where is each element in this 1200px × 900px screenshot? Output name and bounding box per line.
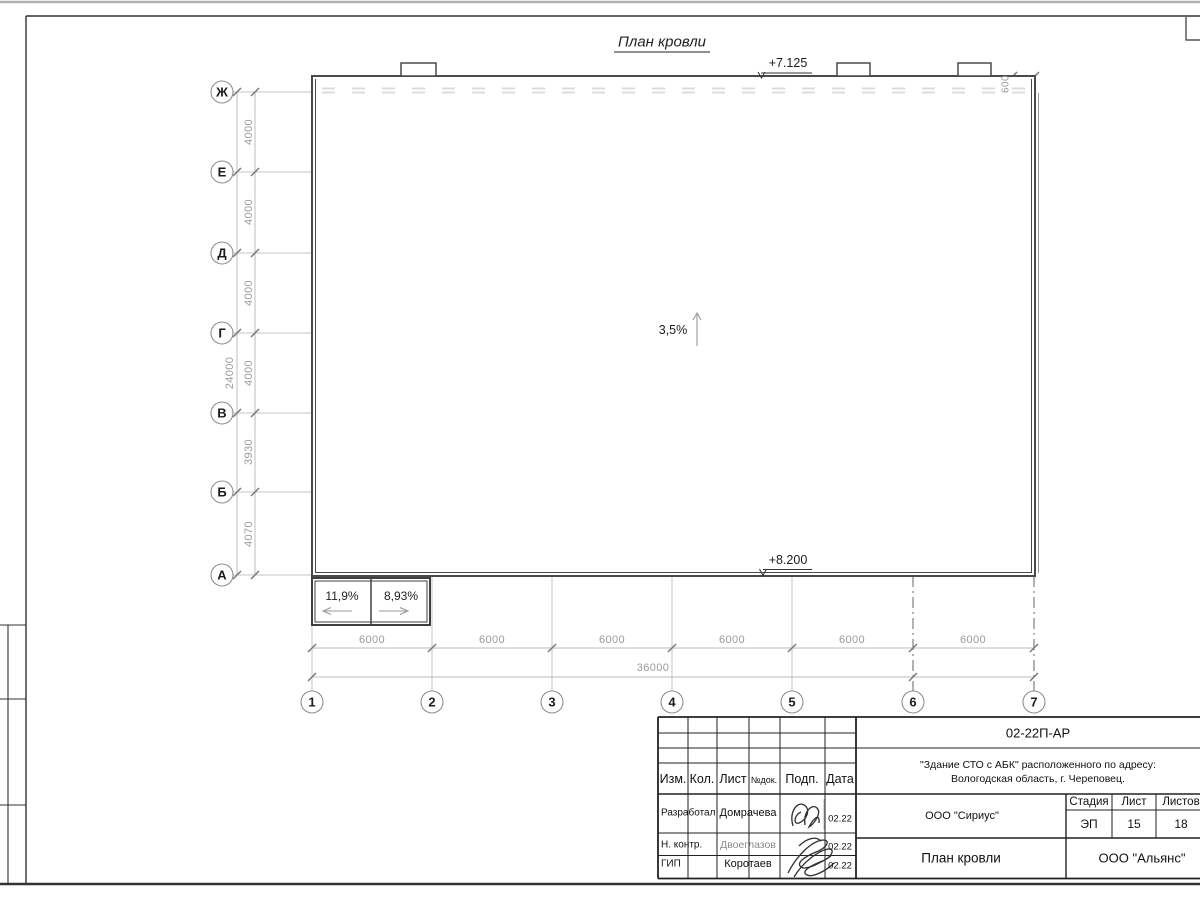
row-total-dim: 24000 [224, 357, 236, 390]
axis-col-label: 3 [548, 695, 555, 710]
roof-vent [401, 63, 436, 76]
row-dim: 4000 [243, 280, 255, 306]
row-dim: 3930 [243, 439, 255, 465]
col-dim: 6000 [839, 634, 865, 646]
tb-stage-value: ЭП [1080, 817, 1097, 831]
annex-slope-left: 11,9% [325, 589, 358, 603]
tb-project-line2: Вологодская область, г. Череповец. [951, 773, 1125, 785]
axis-row-label: Г [218, 326, 225, 341]
row-dim: 4000 [243, 360, 255, 386]
tb-date: 02.22 [828, 861, 852, 872]
axis-row-label: В [217, 406, 226, 421]
tb-customer-org: ООО "Альянс" [1099, 851, 1186, 866]
tb-name: Двоеглазов [720, 839, 776, 851]
drawing-sheet: План кровли +7.125 +8.200 3,5% 600 11,9%… [0, 0, 1200, 900]
tb-sheet-label: Лист [1122, 796, 1147, 808]
axis-col-label: 2 [428, 695, 435, 710]
tb-role: Н. контр. [661, 840, 702, 851]
roof-slope-label: 3,5% [659, 323, 688, 337]
tb-stage-label: Стадия [1069, 796, 1108, 808]
roof-outline [312, 63, 1039, 576]
signature-razrabotal [805, 807, 819, 827]
roof-vent [837, 63, 870, 76]
page-title: План кровли [614, 34, 710, 53]
col-dim: 6000 [599, 634, 625, 646]
tb-name: Коротаев [724, 858, 772, 870]
axis-col-label: 4 [668, 695, 675, 710]
tb-doc-number: 02-22П-АР [1006, 726, 1070, 741]
tb-header-izm: Изм. [660, 772, 687, 786]
parapet-offset-dim: 600 [1001, 75, 1012, 93]
tb-date: 02.22 [828, 842, 852, 853]
tb-header-kol: Кол. [690, 772, 715, 786]
signature-flourish [799, 838, 821, 846]
signatures [788, 799, 834, 877]
tb-project-line1: "Здание СТО с АБК" расположенного по адр… [920, 759, 1156, 771]
elevation-bottom: +8.200 [769, 553, 808, 567]
axis-col-label: 6 [909, 695, 916, 710]
axis-col-label: 1 [308, 695, 315, 710]
axis-row-label: Е [218, 165, 227, 180]
roof-vent [958, 63, 991, 76]
annex-slope-right: 8,93% [384, 589, 418, 603]
elevation-top: +7.125 [769, 56, 808, 70]
tb-role: Разработал [661, 808, 715, 819]
axis-row-label: Б [217, 485, 226, 500]
axis-row-label: Д [217, 246, 226, 261]
col-dim: 6000 [359, 634, 385, 646]
col-dim: 6000 [960, 634, 986, 646]
row-dim: 4070 [243, 521, 255, 547]
tb-header-ndok: №док. [751, 775, 777, 785]
row-dim: 4000 [243, 199, 255, 225]
tb-name: Домрачева [720, 807, 777, 819]
tb-header-list: Лист [719, 772, 746, 786]
axis-col-label: 7 [1030, 695, 1037, 710]
tb-sheets-label: Листов [1162, 796, 1199, 808]
axis-col-label: 5 [788, 695, 795, 710]
tb-date: 02.22 [828, 814, 852, 825]
col-total-dim: 36000 [637, 662, 670, 674]
axis-row-label: А [217, 568, 226, 583]
tb-sheets-value: 18 [1174, 817, 1187, 831]
axis-row-label: Ж [216, 85, 228, 100]
row-dim: 4000 [243, 119, 255, 145]
col-dim: 6000 [719, 634, 745, 646]
tb-sheet-title: План кровли [921, 851, 1001, 866]
tb-header-data: Дата [826, 772, 854, 786]
col-dim: 6000 [479, 634, 505, 646]
tb-header-podp: Подп. [785, 772, 818, 786]
tb-role: ГИП [661, 859, 681, 870]
tb-designer-org: ООО "Сириус" [925, 810, 999, 822]
tb-sheet-value: 15 [1127, 817, 1140, 831]
